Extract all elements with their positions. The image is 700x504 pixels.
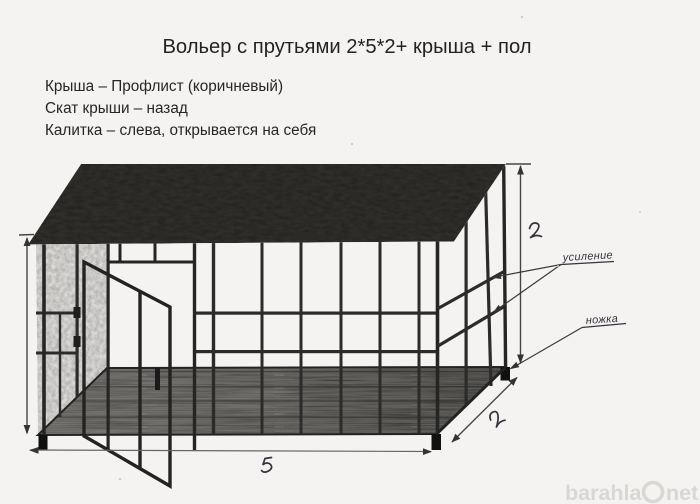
svg-text:Калитка – слева, открывается н: Калитка – слева, открывается на себя	[45, 122, 316, 139]
svg-text:net: net	[666, 481, 698, 504]
svg-text:Вольер с прутьями 2*5*2+ крыша: Вольер с прутьями 2*5*2+ крыша + пол	[162, 36, 531, 58]
svg-text:barahla: barahla	[565, 481, 643, 504]
svg-text:Крыша – Профлист (коричневый): Крыша – Профлист (коричневый)	[45, 78, 283, 95]
svg-text:Скат крыши – назад: Скат крыши – назад	[45, 100, 188, 117]
